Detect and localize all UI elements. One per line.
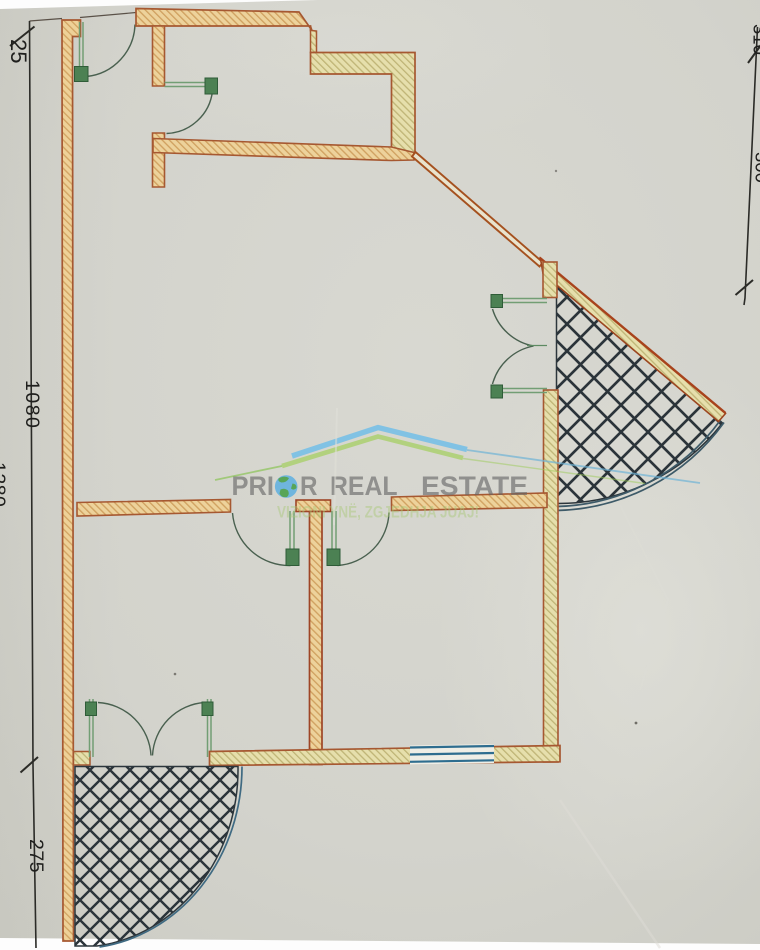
svg-text:310: 310 (750, 24, 760, 55)
svg-text:R: R (300, 471, 318, 501)
svg-text:PRI: PRI (232, 471, 275, 501)
svg-text:VIZIONI YNË, ZGJEDHJA JUAJ!: VIZIONI YNË, ZGJEDHJA JUAJ! (277, 503, 479, 522)
svg-text:1080: 1080 (21, 380, 43, 429)
svg-text:300: 300 (752, 152, 760, 183)
svg-text:REAL: REAL (330, 471, 398, 501)
svg-text:ESTATE: ESTATE (421, 471, 528, 501)
svg-text:25: 25 (6, 39, 31, 63)
svg-text:275: 275 (25, 839, 47, 873)
svg-text:1280: 1280 (0, 462, 9, 507)
